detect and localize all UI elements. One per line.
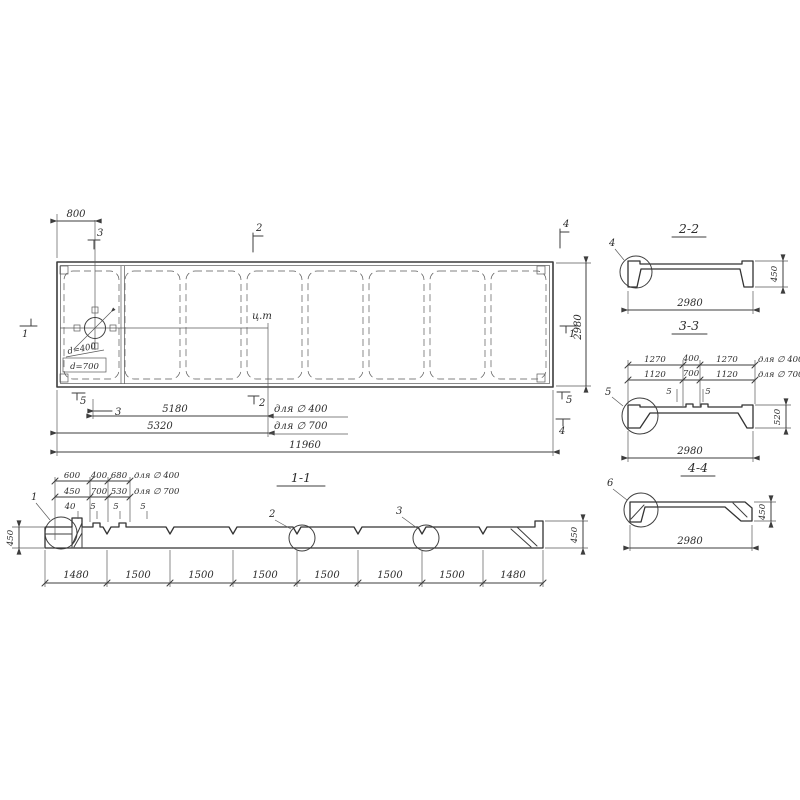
section-1-1: 1-1 1 2 3 600 400 680 для ∅ 400 450 700 …: [6, 470, 588, 587]
cut-mark-2: [253, 233, 263, 252]
small-dim-arrows: [677, 389, 703, 402]
leader-line: [612, 397, 623, 406]
section-2-2-title: 2-2: [678, 221, 699, 236]
note-row2: для ∅ 700: [758, 370, 800, 380]
section-3-3-profile: [628, 404, 753, 428]
cut-mark-1-left: [20, 319, 37, 326]
dim-700: 700: [683, 369, 700, 379]
dim-11960: 11960: [289, 440, 321, 451]
dim-680: 680: [111, 471, 128, 481]
dim-1120-a: 1120: [644, 370, 666, 380]
dim-700: 700: [91, 487, 108, 497]
marker-1-left: 1: [22, 329, 28, 340]
section-4-4: 4-4 6 2980 450: [607, 460, 776, 551]
hole-d700-label: d=700: [70, 362, 99, 372]
dim-450: 450: [758, 503, 768, 521]
dim-2980: 2980: [676, 536, 703, 547]
dim-450-right: 450: [570, 526, 580, 544]
plan-view: d=400 d=700 ц.т 800 3 2 4 2980 1 1: [20, 209, 591, 456]
rib-divider: [121, 266, 125, 384]
dim-1480-a: 1480: [63, 570, 89, 581]
note-row1: для ∅ 400: [134, 471, 180, 481]
marker-2-top: 2: [255, 223, 262, 234]
section-2-2: 2-2 4 2980 450: [608, 221, 788, 314]
dim-2980: 2980: [676, 298, 703, 309]
drawing-sheet: d=400 d=700 ц.т 800 3 2 4 2980 1 1: [0, 0, 800, 800]
section-4-4-profile: [630, 502, 752, 522]
cut-mark-3: [88, 240, 100, 249]
marker-4-bottom: 4: [558, 426, 565, 437]
dim-5c: 5: [140, 502, 145, 512]
ext-lines: [12, 527, 44, 548]
marker-2-bottom: 2: [258, 398, 265, 409]
detail-4-label: 4: [608, 238, 615, 249]
dim-1500-e: 1500: [377, 570, 403, 581]
small-dim-arrows: [78, 511, 147, 519]
section-1-1-profile: [45, 518, 543, 548]
dim-450: 450: [770, 265, 780, 283]
dim-600: 600: [64, 471, 81, 481]
dim-400: 400: [90, 471, 108, 481]
panel-inner-edge: [61, 266, 550, 384]
dim-400: 400: [682, 354, 700, 364]
coffer-openings: [64, 271, 546, 379]
dim-1270-b: 1270: [716, 355, 738, 365]
dim-5a: 5: [90, 502, 95, 512]
note-5320: для ∅ 700: [274, 421, 328, 432]
dim-1500-f: 1500: [439, 570, 465, 581]
dim-1500-d: 1500: [314, 570, 340, 581]
note-row1: для ∅ 400: [758, 355, 800, 365]
leader-line: [613, 489, 627, 500]
marker-3-top: 3: [97, 228, 103, 239]
leader-line: [615, 249, 624, 260]
detail-circle-3: [413, 525, 439, 551]
hole-d400-label: d=400: [67, 342, 98, 357]
section-4-4-title: 4-4: [687, 460, 708, 475]
detail-circle-2: [289, 525, 315, 551]
marker-1-right: 1: [569, 329, 575, 340]
dim-5b: 5: [113, 502, 118, 512]
dim-1480-b: 1480: [500, 570, 526, 581]
center-of-gravity-label: ц.т: [252, 311, 272, 322]
dim-520: 520: [773, 408, 783, 425]
dim-5320: 5320: [147, 421, 173, 432]
section-1-1-title: 1-1: [291, 470, 311, 485]
cut-mark-4: [560, 229, 569, 248]
note-row2: для ∅ 700: [134, 487, 180, 497]
detail-5-label: 5: [605, 387, 611, 398]
detail-3-label: 3: [396, 506, 402, 517]
note-5180: для ∅ 400: [274, 404, 328, 415]
detail-1-label: 1: [31, 492, 37, 503]
dim-1500-a: 1500: [125, 570, 151, 581]
detail-6-label: 6: [607, 478, 614, 489]
dim-5b: 5: [705, 387, 710, 397]
dim-530: 530: [111, 487, 128, 497]
dim-800: 800: [66, 209, 86, 220]
cut-mark-2-bottom: [248, 396, 259, 404]
section-3-3-title: 3-3: [679, 318, 699, 333]
detail-2-label: 2: [268, 509, 275, 520]
ext-lines: [45, 550, 543, 587]
dim-40: 40: [64, 502, 76, 512]
marker-5-bottom-left: 5: [80, 396, 86, 407]
cut-mark-4-bottom: [556, 419, 570, 426]
marker-5-bottom-right: 5: [566, 395, 572, 406]
panel-outline: [57, 262, 553, 387]
dim-5180: 5180: [162, 404, 188, 415]
section-3-3: 3-3 1270 400 1270 для ∅ 400 1120 700 112…: [605, 318, 800, 462]
dim-450: 450: [63, 487, 81, 497]
dim-5a: 5: [666, 387, 671, 397]
hole-fitting: d=400 d=700: [60, 220, 268, 372]
dim-1500-b: 1500: [188, 570, 214, 581]
dim-2980: 2980: [676, 446, 703, 457]
dim-1120-b: 1120: [716, 370, 738, 380]
dim-1500-c: 1500: [252, 570, 278, 581]
dim-1270-a: 1270: [644, 355, 666, 365]
section-2-2-profile: [628, 261, 753, 287]
leader-line: [36, 503, 50, 520]
dim-450-left: 450: [6, 529, 16, 547]
engineering-drawing: d=400 d=700 ц.т 800 3 2 4 2980 1 1: [0, 0, 800, 800]
section-markers-top: 3 2 4: [88, 219, 569, 252]
ext-lines: [545, 521, 588, 548]
marker-4-top: 4: [562, 219, 569, 230]
corner-anchors: [60, 266, 545, 382]
